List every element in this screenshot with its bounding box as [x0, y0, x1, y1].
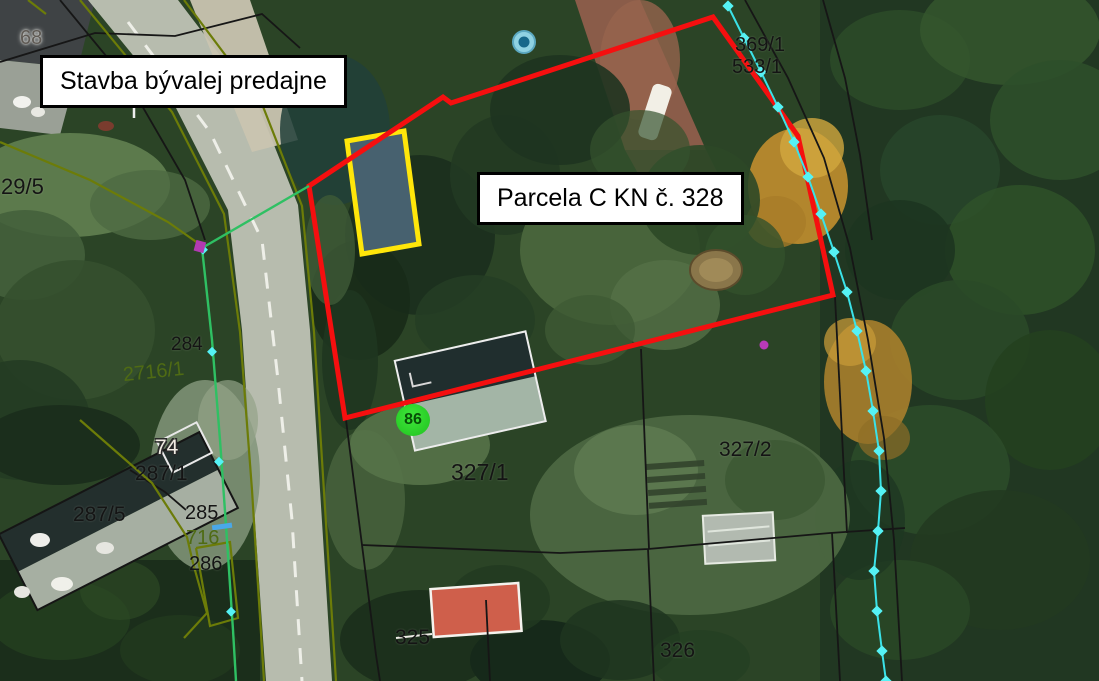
parcel-number-325: 325 [395, 627, 430, 648]
parcel-number-327-1: 327/1 [451, 461, 509, 484]
parcel-number-287-5: 287/5 [73, 504, 126, 525]
parcel-number-74: 74 [155, 437, 178, 458]
red-roof-building [430, 583, 521, 637]
parcel-number-29-5: 29/5 [1, 176, 44, 198]
parcel-number-327-2: 327/2 [719, 439, 772, 460]
parcel-number-286: 286 [189, 554, 222, 574]
parcel-number-68: 68 [20, 28, 42, 48]
parcel-number-533-1: 533/1 [732, 57, 782, 77]
cadastral-aerial-map: 68 29/5 284 2716/1 74 287/1 287/5 285 71… [0, 0, 1099, 681]
yellow-building-highlight [347, 131, 419, 254]
parcel-number-284: 284 [171, 335, 203, 354]
callout-former-shop-building: Stavba bývalej predajne [40, 55, 347, 108]
building-number-badge: 86 [396, 404, 430, 436]
parcel-number-716: 716 [186, 528, 219, 548]
parcel-number-326: 326 [660, 640, 695, 661]
parcel-number-369-1: 369/1 [735, 35, 785, 55]
parcel-number-287-1: 287/1 [135, 463, 188, 484]
callout-parcel-328: Parcela C KN č. 328 [477, 172, 744, 225]
parcel-number-285: 285 [185, 503, 218, 523]
